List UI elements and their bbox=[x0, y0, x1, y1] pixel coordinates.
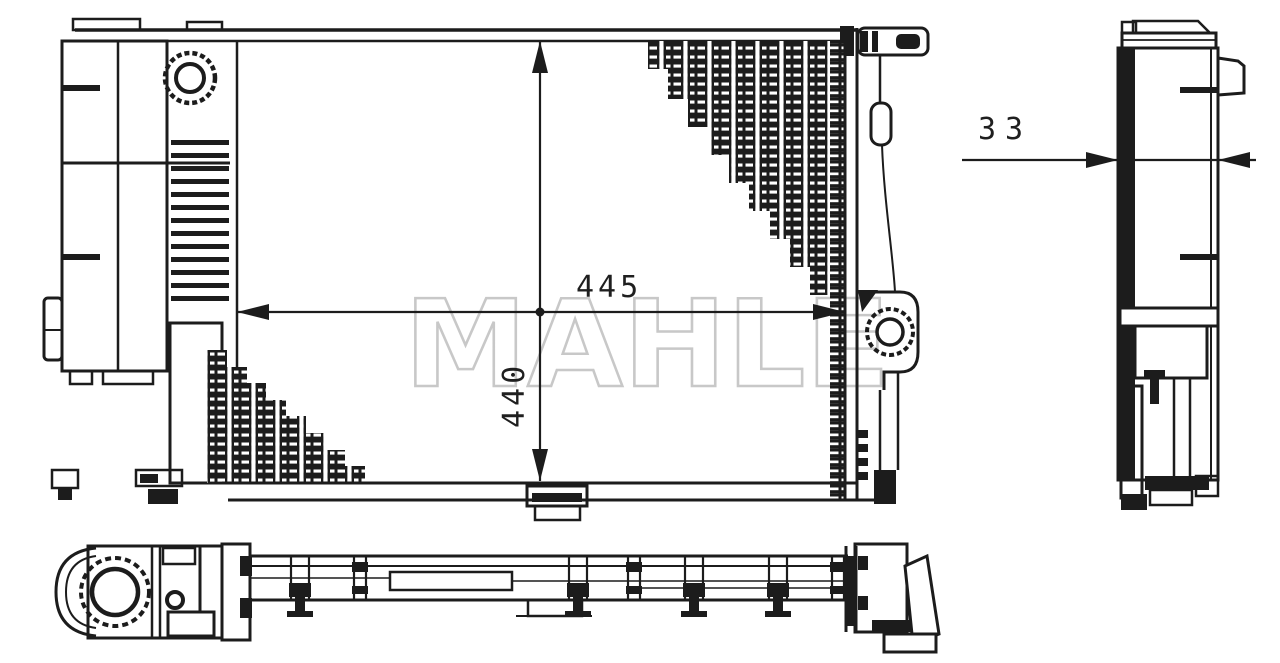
core-edge-fin-strip bbox=[830, 41, 845, 500]
dimension-label-depth: 33 bbox=[978, 112, 1032, 147]
upper-mounting-boss bbox=[165, 53, 215, 103]
tank-rib bbox=[62, 85, 100, 91]
arrow-right-icon bbox=[1086, 152, 1118, 168]
drawing-canvas: MAHLE bbox=[0, 0, 1280, 663]
mounting-clip bbox=[626, 556, 642, 600]
drain-plug bbox=[167, 592, 183, 608]
arrow-left-icon bbox=[237, 304, 269, 320]
bottom-view bbox=[56, 544, 939, 652]
bar-slot bbox=[390, 572, 512, 590]
dimension-node bbox=[536, 308, 545, 317]
dimension-core-height bbox=[532, 41, 548, 481]
arrow-down-icon bbox=[532, 449, 548, 481]
overflow-nipple bbox=[871, 103, 891, 145]
arrow-up-icon bbox=[532, 41, 548, 73]
mahle-watermark: MAHLE bbox=[404, 276, 890, 415]
tank-foot bbox=[70, 371, 92, 384]
side-view bbox=[1118, 21, 1244, 510]
arrow-left-icon bbox=[1218, 152, 1250, 168]
right-frame-and-tank bbox=[845, 28, 928, 504]
tank-foot bbox=[103, 371, 153, 384]
mounting-clip bbox=[830, 556, 846, 600]
side-right-tab bbox=[1218, 58, 1244, 95]
front-view bbox=[44, 19, 928, 520]
radiator-technical-drawing: MAHLE bbox=[0, 0, 1280, 663]
dimension-label-core-width: 445 bbox=[576, 270, 642, 305]
side-lower-band bbox=[1120, 308, 1218, 326]
hatch-section-top-right bbox=[648, 41, 830, 295]
hatch-section-bottom-left bbox=[207, 350, 365, 483]
side-top-cap bbox=[1133, 21, 1210, 33]
dimension-label-core-height: 440 bbox=[497, 362, 532, 428]
tank-rib bbox=[62, 254, 100, 260]
